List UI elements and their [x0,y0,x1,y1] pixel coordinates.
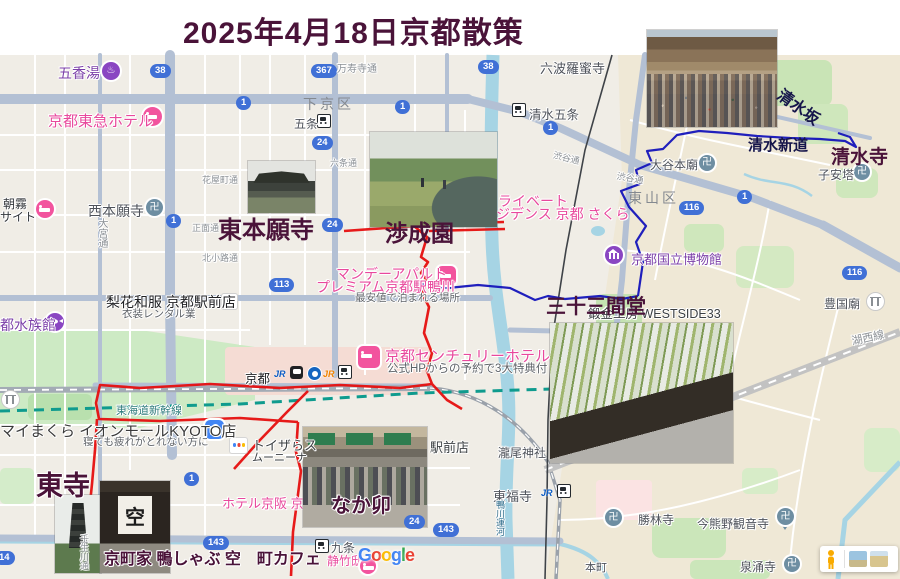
kyoto-station-icon[interactable] [338,365,352,379]
route-shield-38a: 38 [150,64,171,78]
label-monday-apart-sub: 最安値で泊まれる場所 [355,290,460,305]
screenshot-stage: 空 2025年4月18日京都散策 東本願寺 渉成園 三十三間堂 清水寺 清水新道… [0,0,900,579]
label-sennyuji[interactable]: 泉涌寺 [740,558,776,575]
annotation-caption: 京町家 鴨しゃぶ 空 町カフェ [104,545,321,569]
logo-letter: g [391,545,401,565]
route-shield-24c: 24 [404,515,425,529]
label-rika-wafuku-sub: 衣装レンタル業 [122,306,196,321]
label-tokaido-shinkansen: 東海道新幹線 [116,402,182,418]
kiyomizu-gojo-station-icon[interactable] [512,103,526,117]
label-kamogawa-canal: 鴨川運河 [494,500,507,536]
label-shomen-dori: 正面通 [192,221,219,234]
label-kiyomizu-gojo-station[interactable]: 清水五条 [529,104,579,123]
gojo-station-icon[interactable] [317,114,331,128]
logo-letter: G [358,545,371,565]
label-ekimae-ten: 駅前店 [430,437,469,456]
photo-kiyomizuzaka-crowd [647,30,777,127]
annotation-higashi-honganji: 東本願寺 [218,210,314,245]
nishi-honganji-temple-icon[interactable]: 卍 [146,199,163,216]
logo-letter: o [381,545,391,565]
photo-shoseien-garden [370,132,497,227]
logo-letter: o [371,545,381,565]
label-mymakura-sub: 寝ても疲れがとれない方に [83,434,208,449]
pegbar-divider [844,550,845,568]
label-kyoto-national-museum[interactable]: 京都国立博物館 [631,249,722,268]
annotation-kiyomizu-shindo: 清水新道 [748,134,808,155]
label-private-residence-line2[interactable]: ジデンス 京都 さくら [496,204,630,224]
annotation-toji: 東寺 [36,464,90,503]
label-rokuharamitsuji[interactable]: 六波羅蜜寺 [540,58,605,77]
asagiri-hotel-icon[interactable] [36,200,54,218]
label-takinoo-jinja[interactable]: 瀧尾神社 [498,444,546,461]
toyokuni-byo-shrine-icon[interactable] [866,292,885,311]
route-shield-116b: 116 [842,266,867,280]
label-manjuji-dori: 万寿寺通 [337,60,377,75]
route-shield-38b: 38 [478,60,499,74]
jr-central-logo: JR [323,369,335,379]
jr-west-logo: JR [274,369,286,379]
noren-kanji: 空 [118,496,152,535]
imagery-thumbnail-1[interactable] [849,551,867,567]
label-honmachi: 本町 [585,559,607,575]
label-otani-hombyo[interactable]: 大谷本廟 [650,156,698,173]
photo-higashi-honganji [248,161,315,213]
route-shield-1b: 1 [395,100,410,114]
streetview-imagery-bar [820,546,898,572]
label-shimogyo-ward: 下京区 [303,94,354,114]
map-canvas[interactable]: 空 2025年4月18日京都散策 東本願寺 渉成園 三十三間堂 清水寺 清水新道… [0,0,900,579]
annotation-kiyomizudera: 清水寺 [831,142,888,169]
route-shield-1c: 1 [166,214,181,228]
label-gojo-station[interactable]: 五条 [294,115,318,132]
route-shield-367: 367 [311,64,337,78]
label-asagiri-site-line2[interactable]: サイト [0,208,36,225]
label-mibu-dori: 壬生川通 [78,534,91,570]
sennyuji-temple-icon[interactable]: 卍 [784,556,800,572]
label-kujo-station[interactable]: 九条 [331,539,355,556]
label-hanayacho-dori: 花屋町通 [202,173,238,186]
google-logo[interactable]: Google [358,545,414,566]
imagery-thumbnail-2[interactable] [870,551,888,567]
label-century-hotel-sub: 公式HPからの予約で3大特典付 [387,360,547,376]
kyoto-metro-icon [307,366,322,381]
label-toysrus-sub: ムーニーナ [252,449,307,465]
century-hotel-icon[interactable] [358,346,380,368]
tofukuji-station-icon[interactable] [557,484,571,498]
museum-icon[interactable] [605,246,623,264]
annotation-shoseien: 渉成園 [385,214,454,248]
route-shield-14: 14 [0,551,15,565]
label-imakumano-kannonji[interactable]: 今熊野観音寺 [697,515,769,532]
route-shield-24a: 24 [312,136,333,150]
label-omiya-dori: 大宮通 [94,218,109,248]
annotation-sanjusangendo: 三十三間堂 [546,290,646,319]
page-title: 2025年4月18日京都散策 [183,8,524,52]
imakumano-temple-pin-icon[interactable]: 卍 [777,508,794,525]
label-rokujo-dori: 六条通 [330,156,357,169]
label-kyoto-tokyu-hotel[interactable]: 京都東急ホテル [48,110,153,131]
logo-letter: e [405,545,414,565]
route-shield-1e: 1 [737,190,752,204]
route-shield-1f: 1 [184,472,199,486]
wakaichi-shrine-icon[interactable] [1,390,20,409]
otani-hombyo-temple-icon[interactable]: 卍 [699,155,715,171]
route-shield-1a: 1 [236,96,251,110]
route-shield-116a: 116 [679,201,704,215]
tofukuji-jr-logo: JR [541,488,553,498]
photo-sanjusangendo-wall [550,323,733,463]
route-shield-113: 113 [269,278,294,292]
label-shorinji[interactable]: 勝林寺 [638,511,674,528]
bathhouse-icon[interactable]: ♨ [102,62,120,80]
route-shield-24b: 24 [322,218,343,232]
route-shield-1d: 1 [543,121,558,135]
label-toyokuni-byo[interactable]: 豊国廟 [824,295,860,312]
label-kyoto-station[interactable]: 京都 [245,368,270,387]
kyoto-subway-icon [290,366,303,379]
shorinji-temple-icon[interactable]: 卍 [605,509,622,526]
label-kyoto-aquarium[interactable]: 京都水族館 [0,315,56,335]
label-higashiyama-ward: 東山区 [628,188,679,208]
label-gokoyu[interactable]: 五香湯 [58,63,100,83]
label-kitakoji-dori: 北小路通 [202,251,238,264]
annotation-nakau: なか卯 [331,489,391,518]
route-shield-143b: 143 [433,523,459,537]
pegman-icon[interactable] [820,548,842,570]
